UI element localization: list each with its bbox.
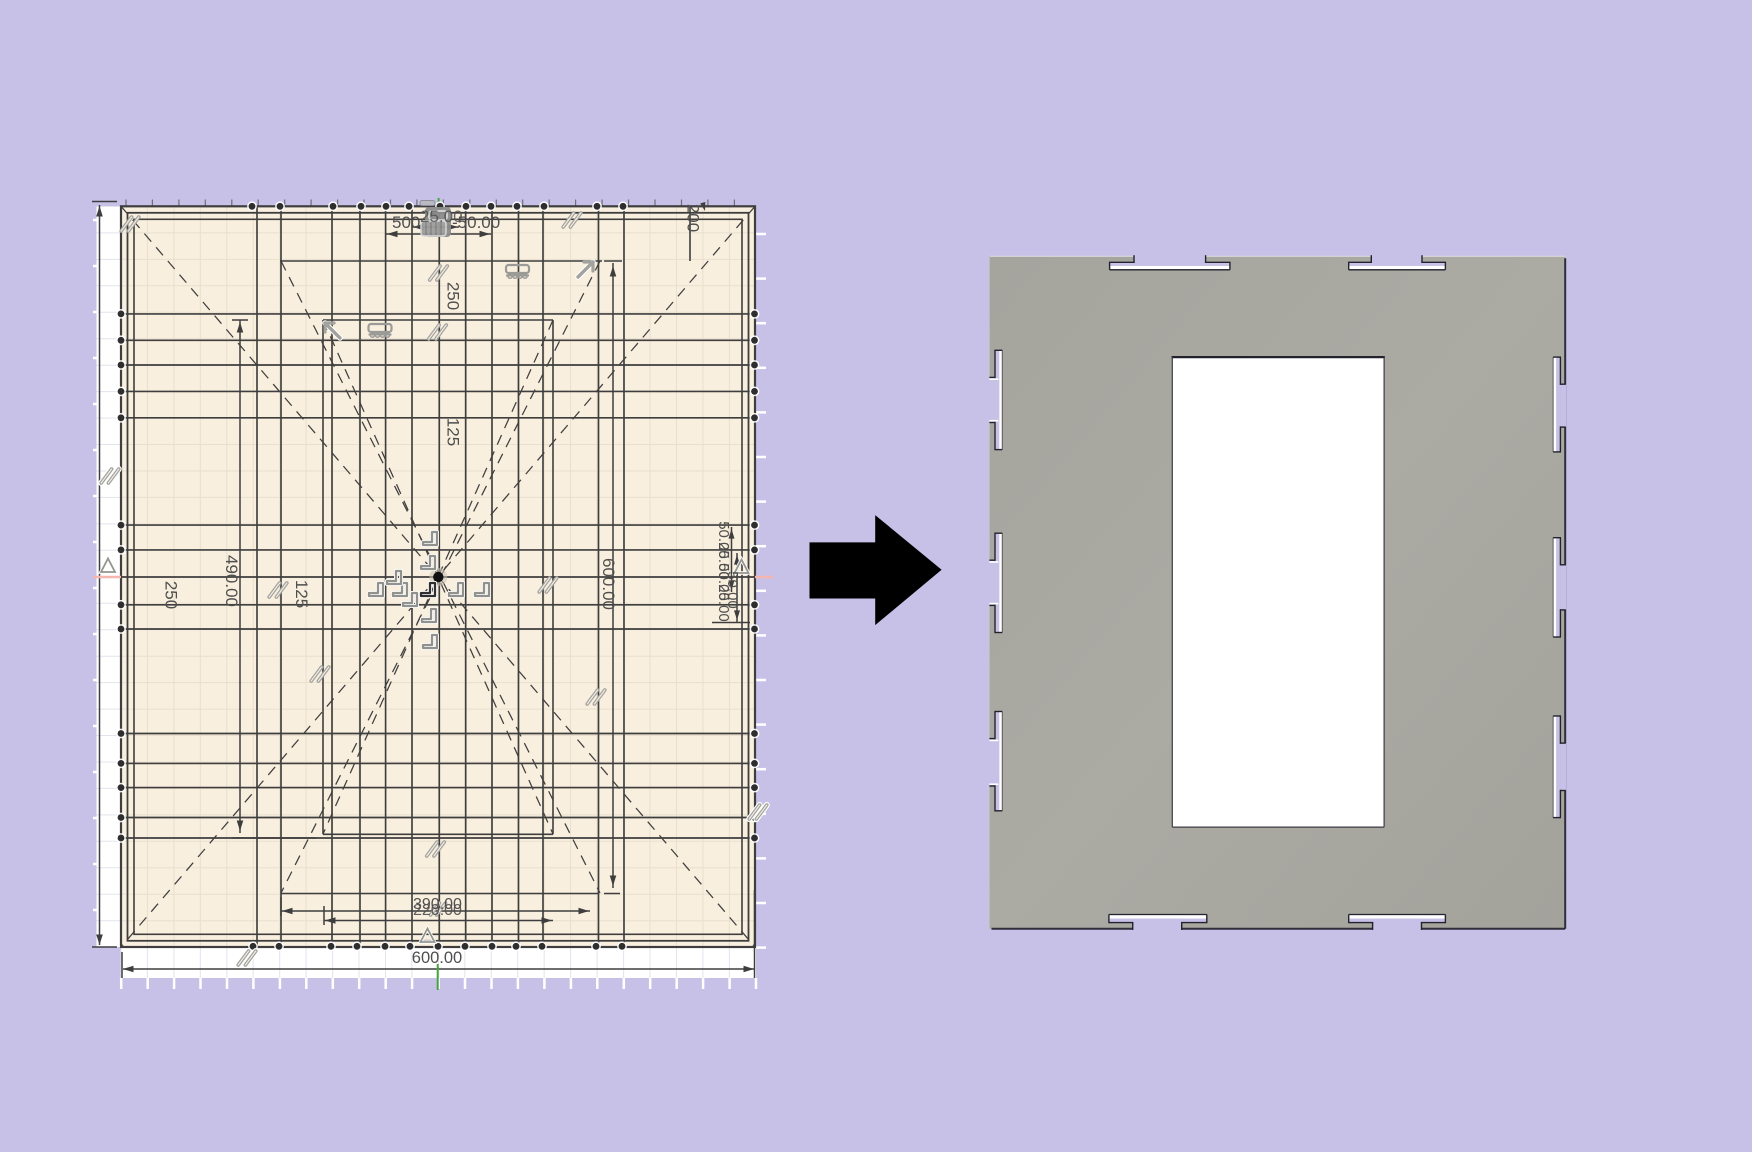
svg-text:200: 200 — [684, 204, 703, 232]
svg-text:600.00: 600.00 — [599, 558, 618, 610]
svg-text:125: 125 — [292, 580, 311, 608]
svg-text:490.00: 490.00 — [222, 555, 241, 607]
svg-text:600.00: 600.00 — [412, 949, 462, 967]
svg-text:500: 500 — [392, 213, 420, 232]
svg-text:250: 250 — [162, 581, 181, 609]
svg-text:25.00: 25.00 — [420, 207, 463, 226]
svg-text:125: 125 — [444, 418, 463, 446]
svg-text:50.00: 50.00 — [724, 571, 741, 609]
svg-text:220.00: 220.00 — [413, 902, 462, 919]
svg-text:250: 250 — [444, 282, 463, 310]
